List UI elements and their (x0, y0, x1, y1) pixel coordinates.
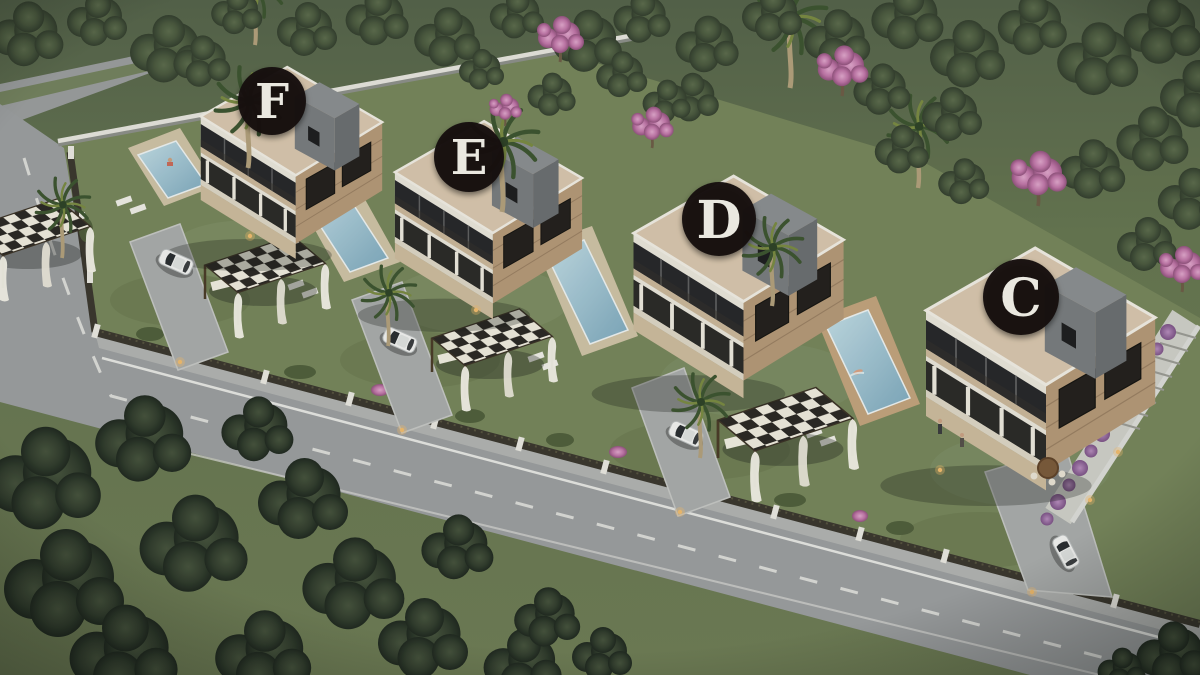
render-canvas: F E D C (0, 0, 1200, 675)
site-render: F E D C (0, 0, 1200, 675)
vignette (0, 0, 1200, 675)
